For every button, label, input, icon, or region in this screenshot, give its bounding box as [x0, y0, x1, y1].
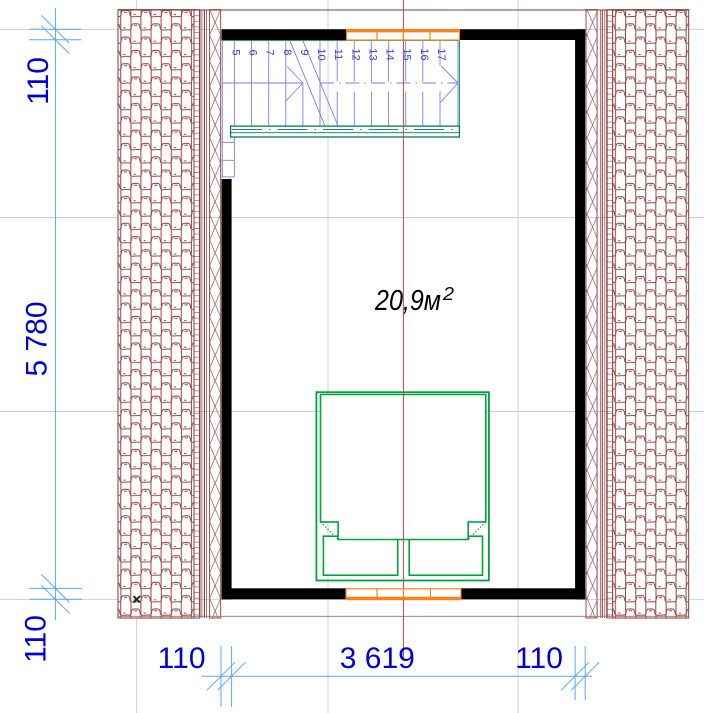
svg-text:8: 8 — [281, 49, 293, 55]
svg-text:3 619: 3 619 — [340, 642, 415, 675]
svg-text:10: 10 — [315, 48, 327, 60]
svg-text:110: 110 — [158, 642, 206, 675]
svg-text:110: 110 — [22, 57, 55, 105]
svg-text:14: 14 — [384, 48, 396, 60]
svg-text:11: 11 — [332, 49, 344, 60]
svg-text:6: 6 — [247, 49, 259, 55]
svg-text:15: 15 — [401, 48, 413, 60]
svg-text:20,9м: 20,9м — [374, 285, 441, 317]
svg-text:17: 17 — [435, 48, 447, 60]
svg-text:5 780: 5 780 — [20, 301, 53, 376]
svg-text:7: 7 — [264, 49, 276, 55]
svg-text:110: 110 — [20, 615, 53, 663]
svg-text:12: 12 — [349, 48, 361, 60]
svg-text:110: 110 — [515, 642, 563, 675]
svg-text:2: 2 — [442, 283, 455, 304]
svg-text:5: 5 — [229, 49, 241, 55]
svg-text:9: 9 — [298, 49, 310, 55]
svg-text:13: 13 — [366, 48, 378, 60]
svg-text:16: 16 — [418, 48, 430, 60]
